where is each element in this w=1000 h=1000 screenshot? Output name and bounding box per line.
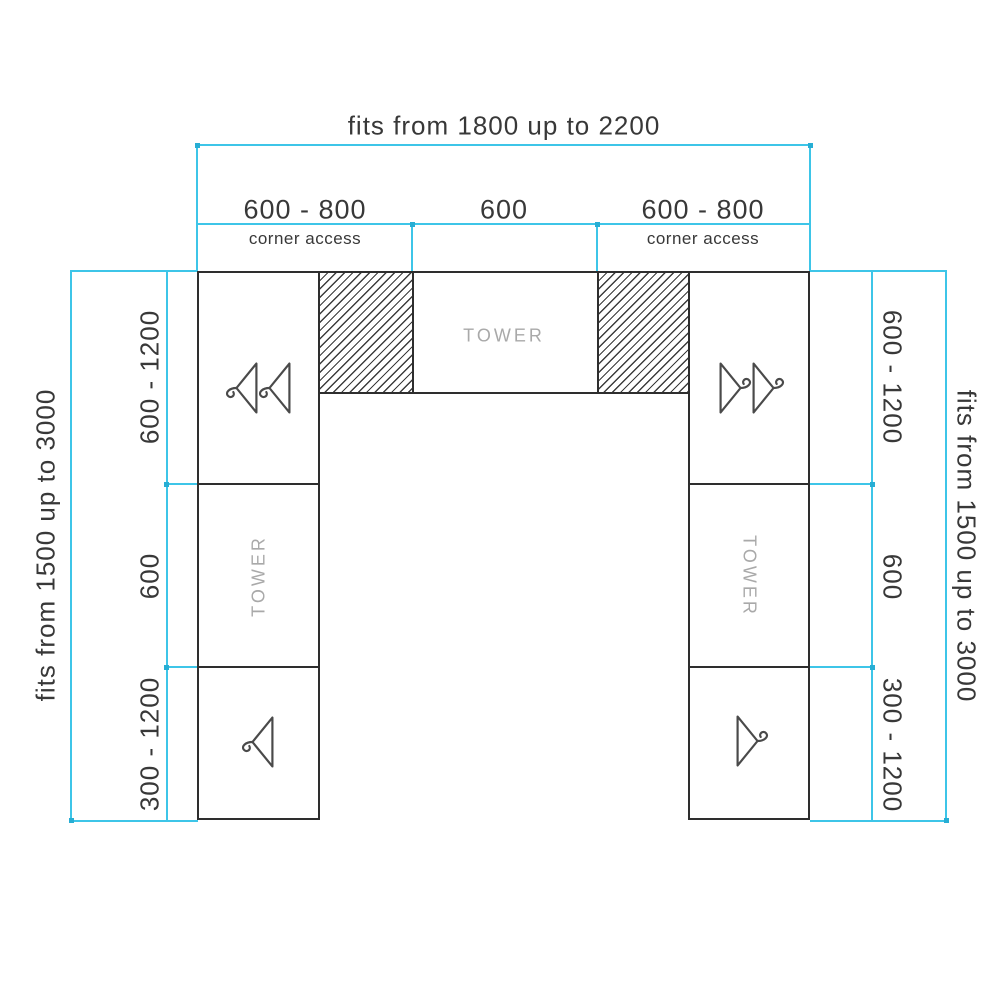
tick-line xyxy=(810,666,873,668)
wardrobe-layout-diagram: fits from 1800 up to 2200 600 - 800 600 … xyxy=(0,0,1000,1000)
top-section-size-label: 600 - 800 xyxy=(243,195,366,226)
tick-line xyxy=(810,820,947,822)
left-section-size-label: 600 xyxy=(135,553,166,599)
right-section-size-label: 300 - 1200 xyxy=(877,678,908,812)
dimension-junction xyxy=(410,222,415,227)
dimension-junction xyxy=(870,482,875,487)
right-column-divider xyxy=(690,666,808,668)
extension-line xyxy=(809,144,811,272)
top-section-size-label: 600 xyxy=(480,195,528,226)
corner-access-label: corner access xyxy=(249,229,361,249)
tick-line xyxy=(70,270,198,272)
hanger-icon xyxy=(731,712,775,770)
tick-line xyxy=(166,666,198,668)
left-section-size-label: 600 - 1200 xyxy=(135,310,166,444)
tick-line xyxy=(810,483,873,485)
tick-line xyxy=(810,270,947,272)
hatch-corner-left xyxy=(318,271,414,394)
left-column-divider xyxy=(199,483,318,485)
hanger-icon xyxy=(235,713,279,771)
dimension-line-left-overall xyxy=(70,271,72,822)
top-overall-dimension-label: fits from 1800 up to 2200 xyxy=(348,111,661,142)
tower-label-center: TOWER xyxy=(463,326,545,347)
dimension-line-right-overall xyxy=(945,271,947,822)
right-overall-dimension-label: fits from 1500 up to 3000 xyxy=(951,390,982,703)
dimension-line-right-sections xyxy=(871,271,873,822)
right-column-divider xyxy=(690,483,808,485)
left-section-size-label: 300 - 1200 xyxy=(135,677,166,811)
tick-line xyxy=(166,483,198,485)
dimension-junction xyxy=(944,818,949,823)
hatch-corner-right xyxy=(597,271,690,394)
dimension-junction xyxy=(808,143,813,148)
right-section-size-label: 600 - 1200 xyxy=(877,310,908,444)
extension-line xyxy=(196,144,198,272)
top-section-size-label: 600 - 800 xyxy=(641,195,764,226)
right-section-size-label: 600 xyxy=(877,554,908,600)
dimension-line-top-overall xyxy=(197,144,810,146)
left-column-divider xyxy=(199,666,318,668)
corner-access-label: corner access xyxy=(647,229,759,249)
left-overall-dimension-label: fits from 1500 up to 3000 xyxy=(31,389,62,702)
dimension-junction xyxy=(595,222,600,227)
dimension-junction xyxy=(69,818,74,823)
dimension-junction xyxy=(164,482,169,487)
tower-label-left: TOWER xyxy=(249,535,270,617)
hanger-icon xyxy=(747,359,791,417)
dimension-junction xyxy=(164,665,169,670)
extension-line xyxy=(596,223,598,272)
hanger-icon xyxy=(252,359,296,417)
dimension-junction xyxy=(870,665,875,670)
extension-line xyxy=(411,223,413,272)
dimension-line-left-sections xyxy=(166,271,168,822)
tower-label-right: TOWER xyxy=(739,535,760,617)
dimension-junction xyxy=(195,143,200,148)
tick-line xyxy=(70,820,198,822)
